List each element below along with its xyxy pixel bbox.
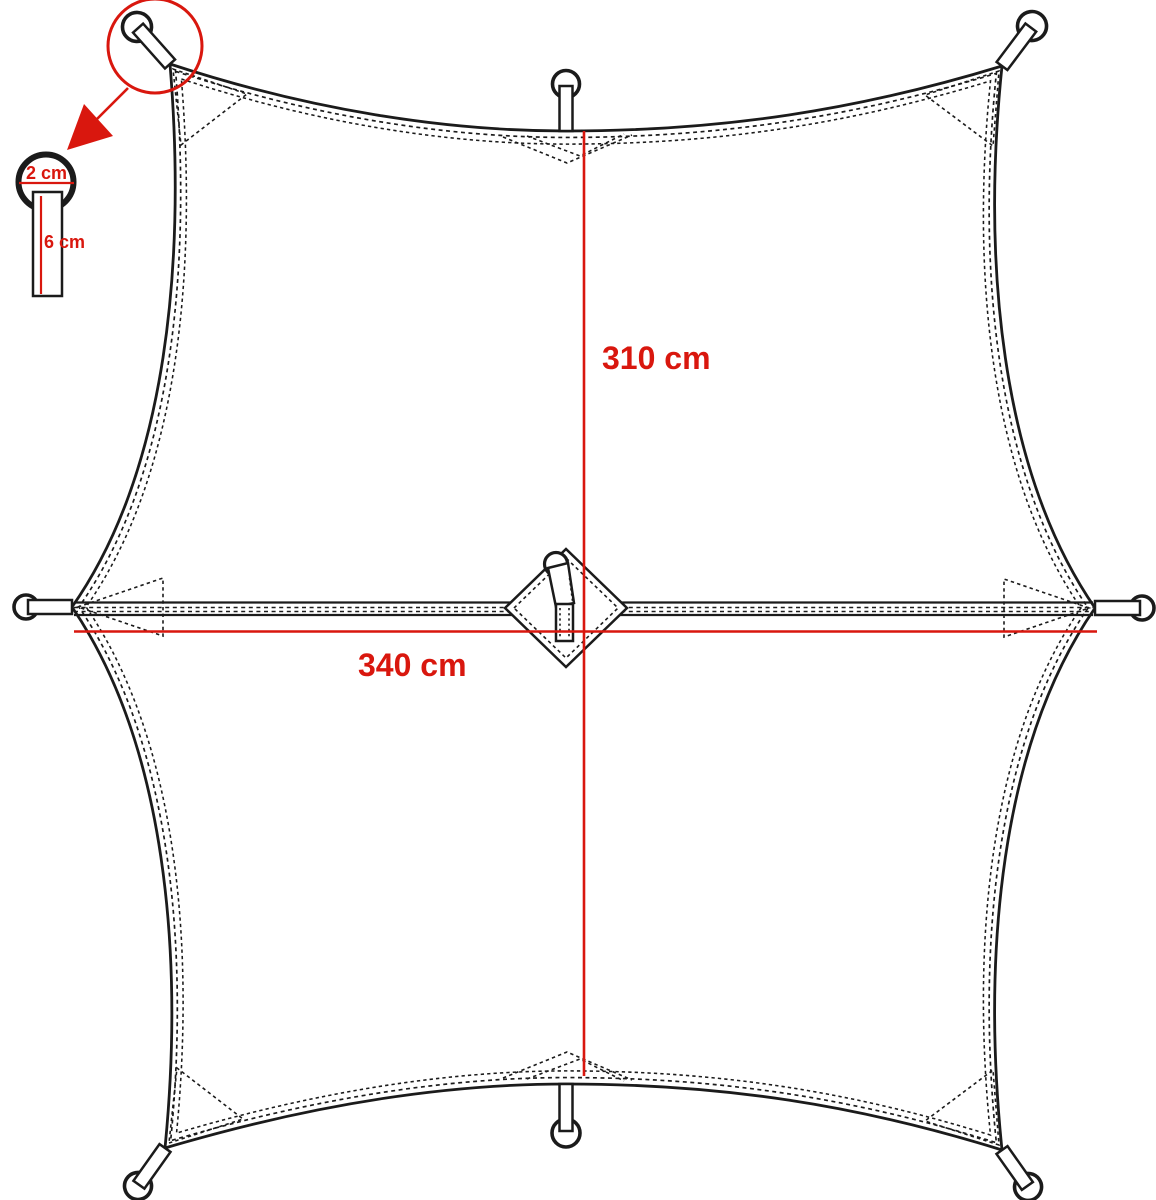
dimension-label-vertical: 310 cm — [602, 340, 711, 376]
loop-webbing — [560, 86, 573, 131]
detail-webbing-length-label: 6 cm — [44, 232, 85, 252]
loop-top-middle — [553, 71, 580, 132]
detail-inset: 2 cm 6 cm — [19, 155, 86, 297]
loop-webbing — [133, 24, 175, 69]
corner-loop-bottom-left — [119, 1140, 176, 1200]
loop-webbing — [28, 600, 72, 614]
tarp-diagram-svg: 2 cm 6 cm 310 cm 340 cm — [0, 0, 1156, 1200]
tarp-diagram: 2 cm 6 cm 310 cm 340 cm — [0, 0, 1156, 1200]
loop-bottom-middle — [552, 1084, 580, 1147]
loop-left-tip — [14, 595, 72, 619]
dimension-label-horizontal: 340 cm — [358, 647, 467, 683]
center-diamond-patch — [505, 549, 627, 667]
corner-loop-bottom-right — [991, 1142, 1047, 1200]
loop-webbing — [560, 1084, 573, 1131]
loop-webbing — [1095, 601, 1140, 615]
corner-loop-top-left — [117, 6, 181, 73]
detail-ring-diameter-label: 2 cm — [26, 163, 67, 183]
loop-right-tip — [1095, 596, 1154, 620]
hang-loop-webbing-lower — [556, 604, 573, 641]
corner-loop-top-right — [990, 6, 1052, 75]
callout-arrow-shaft — [95, 88, 128, 121]
